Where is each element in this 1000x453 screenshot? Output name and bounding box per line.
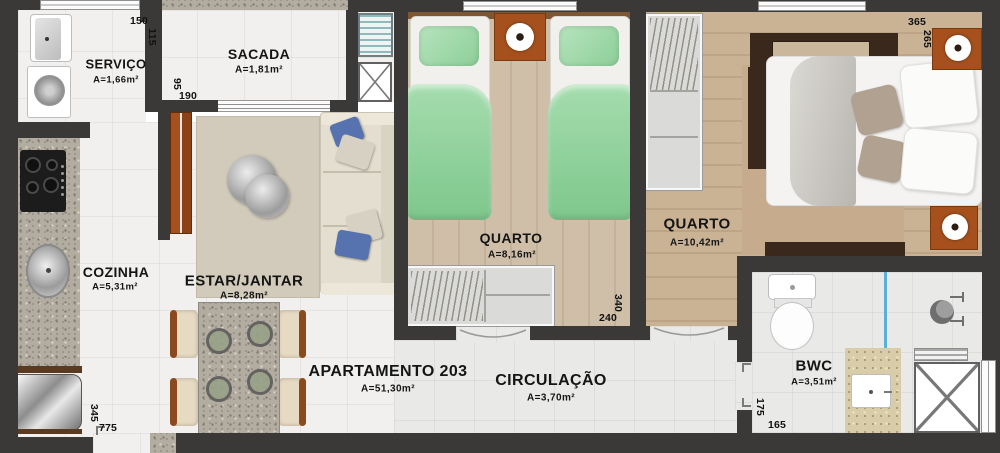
wardrobe-hanger-section [650, 18, 698, 90]
label-quarto1-name: QUARTO [480, 230, 543, 246]
kitchen-sink-drain [46, 268, 51, 273]
shaft-x-icon [916, 364, 978, 431]
label-quarto2-area: A=10,42m² [670, 238, 724, 249]
sacada-sliding-door [218, 100, 330, 112]
wall-bottom [176, 433, 1000, 453]
bed-pillow-green [559, 26, 619, 66]
duct-shaft-box [914, 362, 980, 433]
bwc-door-frame-mark [742, 398, 751, 407]
bed-throw-blanket [790, 56, 856, 206]
washing-machine-drum [34, 75, 65, 106]
dim-quarto2-height: 265 [921, 30, 933, 48]
label-bwc-name: BWC [795, 358, 832, 375]
sink-faucet [884, 391, 892, 393]
refrigerator [16, 374, 82, 431]
duct-shaft-box [358, 62, 392, 102]
bwc-door-frame-mark [742, 363, 751, 372]
wall-servico-cozinha [0, 122, 90, 138]
label-servico-name: SERVIÇO [85, 57, 146, 72]
dim-servico-width: 150 [130, 15, 148, 27]
floor-plan-apartment-203: SERVIÇO A=1,66m² SACADA A=1,81m² COZINHA… [0, 0, 1000, 453]
louver-vent [914, 348, 968, 361]
living-tv-panel [170, 112, 192, 234]
bwc-window [981, 360, 996, 433]
bed-end-bench [765, 242, 905, 256]
label-bwc-area: A=3,51m² [791, 377, 837, 388]
dim-bwc-height: 175 [754, 398, 766, 416]
quarto2-door-swing [652, 326, 726, 345]
wall-left [0, 0, 18, 453]
quarto1-door-swing [458, 328, 528, 347]
dining-table [198, 302, 280, 435]
sofa-armrest [321, 283, 399, 295]
dining-chair [278, 378, 306, 426]
dining-chair [170, 310, 198, 358]
dim-sacada-height: 95 [171, 78, 183, 90]
label-cozinha-area: A=5,31m² [92, 282, 138, 293]
cooktop-knob [61, 193, 64, 196]
label-apartamento-name: APARTAMENTO 203 [309, 363, 468, 381]
kitchen-sink [26, 244, 70, 298]
wall-top [348, 0, 1000, 12]
place-setting [247, 321, 273, 347]
label-circulacao-area: A=3,70m² [527, 393, 575, 404]
wall-niche-left [346, 10, 358, 112]
bed-pillow-green [419, 26, 479, 66]
living-partition-wall [158, 100, 170, 240]
quarto2-wardrobe [646, 14, 702, 190]
quarto1-window [463, 1, 577, 11]
wardrobe-divider [650, 136, 698, 138]
shower-glass-partition [884, 272, 887, 352]
table-lamp [942, 214, 968, 240]
place-setting [247, 369, 273, 395]
label-servico-area: A=1,66m² [93, 75, 139, 86]
table-lamp [945, 35, 971, 61]
sofa-cushion-seam [323, 171, 381, 173]
wall-top [18, 0, 40, 10]
dining-chair [278, 310, 306, 358]
wall-living-quarto1 [394, 10, 408, 340]
cooktop [20, 150, 66, 212]
wardrobe-shelf-line [486, 294, 550, 296]
cooktop-knob [61, 165, 64, 168]
entry-threshold-floor [93, 433, 150, 453]
laundry-tub-drain [45, 37, 49, 41]
sofa-pillow-blue [334, 229, 372, 261]
cooktop-knob [61, 186, 64, 189]
washing-machine [27, 66, 71, 118]
place-setting [206, 328, 232, 354]
cooktop-burner [46, 159, 58, 171]
quarto2-window [758, 1, 866, 11]
toilet-flush-button [790, 285, 795, 290]
servico-window [40, 0, 140, 10]
wall-quarto1-circulacao [394, 326, 456, 340]
table-lamp [506, 23, 534, 51]
cooktop-burner [25, 157, 41, 173]
wall-bwc-left [737, 256, 752, 362]
dim-cozinha-height: 345 [88, 404, 100, 422]
cooktop-knob [61, 172, 64, 175]
bed-blanket-green [548, 84, 634, 220]
wardrobe-divider [650, 90, 698, 92]
wardrobe-hanger-section [411, 271, 483, 321]
shaft-x-icon [360, 64, 390, 100]
cooktop-knob [61, 179, 64, 182]
quarto2-floor-lower [646, 256, 737, 326]
laundry-tub [30, 14, 72, 62]
vanity-sink [851, 374, 891, 408]
label-circulacao-name: CIRCULAÇÃO [495, 372, 607, 390]
dim-apartamento-width: 775 [99, 422, 117, 434]
label-sacada-area: A=1,81m² [235, 65, 283, 76]
round-pouf-table [245, 174, 289, 218]
bed-pillow-white [899, 127, 978, 195]
label-cozinha-name: COZINHA [83, 264, 150, 280]
label-sacada-name: SACADA [228, 46, 290, 62]
dim-quarto1-height: 340 [612, 294, 624, 312]
sink-drain [869, 390, 873, 394]
toilet-tank [768, 274, 816, 300]
entry-step [150, 433, 176, 453]
dim-servico-height: 115 [146, 28, 158, 46]
label-estar-jantar-name: ESTAR/JANTAR [185, 273, 303, 290]
dim-quarto1-width: 240 [599, 312, 617, 324]
dim-quarto2-width: 365 [908, 16, 926, 28]
label-quarto1-area: A=8,16m² [488, 250, 536, 261]
place-setting [206, 376, 232, 402]
quarto1-wardrobe [406, 266, 554, 326]
label-estar-jantar-area: A=8,28m² [220, 291, 268, 302]
wall-quarto2-bwc [737, 256, 982, 272]
sacada-parapet [150, 0, 348, 10]
bed-blanket-green [406, 84, 492, 220]
wall-bottom [0, 437, 93, 453]
label-quarto2-name: QUARTO [663, 216, 730, 233]
shower-valve [950, 296, 963, 298]
wardrobe-divider [484, 270, 486, 322]
rug-border-dark [748, 67, 766, 169]
toilet-bowl [770, 302, 814, 350]
fridge-base-edge [16, 429, 82, 434]
cooktop-burner [43, 177, 59, 193]
dim-bwc-width: 165 [768, 419, 786, 431]
label-apartamento-area: A=51,30m² [361, 384, 415, 395]
ac-grille [358, 13, 393, 57]
cooktop-burner [26, 181, 39, 194]
dim-sacada-width: 190 [179, 90, 197, 102]
counter-edge [14, 366, 82, 373]
shower-valve [950, 320, 963, 322]
dining-chair [170, 378, 198, 426]
wall-quarto1-quarto2 [630, 10, 646, 340]
